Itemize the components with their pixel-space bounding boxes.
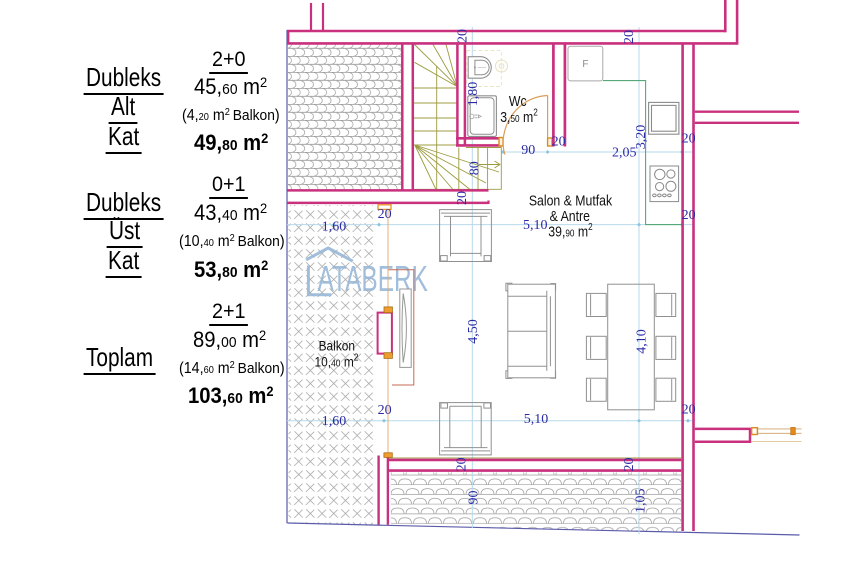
svg-text:90: 90 bbox=[467, 491, 482, 505]
svg-text:20: 20 bbox=[378, 207, 392, 222]
svg-text:1,80: 1,80 bbox=[466, 82, 481, 107]
svg-text:20: 20 bbox=[552, 135, 566, 150]
svg-text:3,20: 3,20 bbox=[634, 125, 649, 150]
svg-text:80: 80 bbox=[468, 161, 483, 175]
svg-text:20: 20 bbox=[622, 30, 637, 44]
svg-text:Balkon: Balkon bbox=[319, 338, 355, 354]
svg-text:5,10: 5,10 bbox=[523, 218, 548, 233]
svg-text:90: 90 bbox=[521, 143, 535, 158]
svg-text:4,50: 4,50 bbox=[466, 319, 481, 344]
svg-text:Wc: Wc bbox=[509, 93, 527, 109]
svg-text:1,60: 1,60 bbox=[322, 219, 347, 234]
svg-text:& Antre: & Antre bbox=[550, 208, 591, 224]
svg-text:20: 20 bbox=[456, 29, 471, 43]
svg-text:20: 20 bbox=[682, 208, 696, 223]
svg-text:1,05: 1,05 bbox=[633, 488, 648, 513]
svg-text:4,10: 4,10 bbox=[634, 329, 649, 354]
svg-text:20: 20 bbox=[622, 458, 637, 472]
svg-text:3,50 m2: 3,50 m2 bbox=[500, 107, 538, 126]
svg-text:1,60: 1,60 bbox=[322, 414, 347, 429]
svg-text:20: 20 bbox=[455, 457, 470, 471]
svg-text:20: 20 bbox=[682, 132, 696, 147]
svg-text:F: F bbox=[582, 59, 588, 70]
svg-text:Salon & Mutfak: Salon & Mutfak bbox=[529, 192, 612, 208]
svg-text:20: 20 bbox=[682, 402, 696, 417]
svg-text:20: 20 bbox=[455, 191, 470, 205]
svg-text:2,05: 2,05 bbox=[612, 145, 637, 160]
svg-text:20: 20 bbox=[378, 403, 392, 418]
svg-text:5,10: 5,10 bbox=[524, 412, 549, 427]
